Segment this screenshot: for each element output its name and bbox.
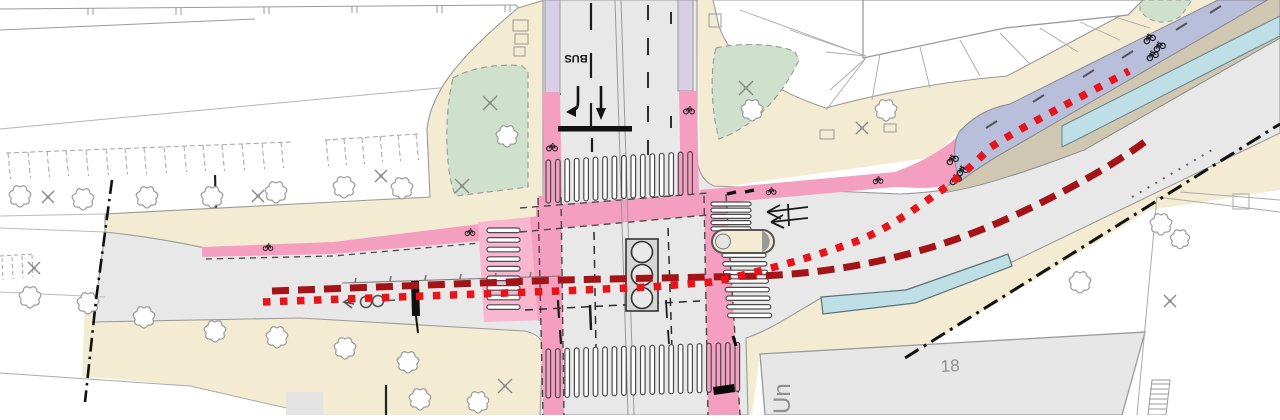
svg-text:BUS: BUS xyxy=(564,52,587,64)
svg-text:18: 18 xyxy=(940,356,960,376)
svg-text:Un: Un xyxy=(769,383,796,414)
